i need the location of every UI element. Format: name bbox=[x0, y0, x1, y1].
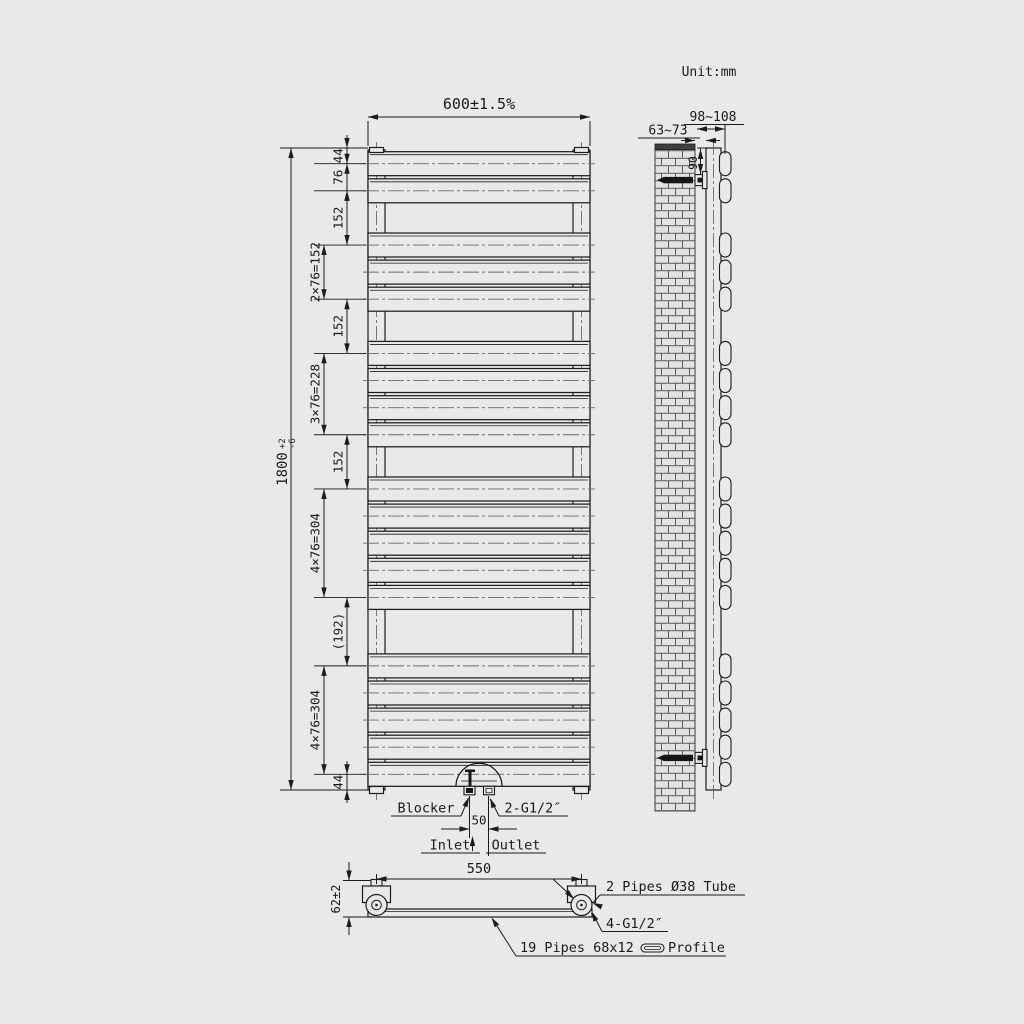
tube-bottom-foot bbox=[370, 787, 384, 794]
depth-dimension: 98~108 bbox=[690, 110, 737, 125]
panel-profile-bar bbox=[368, 909, 592, 917]
panel-cross-section bbox=[720, 531, 732, 555]
segment-dim-label: 152 bbox=[331, 315, 346, 338]
bracket-bolt-head bbox=[698, 178, 703, 183]
panel-cross-section bbox=[720, 152, 732, 176]
blocker-label: Blocker bbox=[398, 801, 455, 817]
unit-label: Unit:mm bbox=[682, 65, 737, 80]
wall-top-cap bbox=[655, 144, 695, 150]
panel-cross-section bbox=[720, 477, 732, 501]
tube-center-dot bbox=[580, 904, 583, 907]
width-dimension-label: 600±1.5% bbox=[443, 95, 515, 113]
blocker-stem bbox=[469, 771, 472, 787]
tubes-label: 2 Pipes Ø38 Tube bbox=[606, 879, 736, 895]
segment-dim-label: 4×76=304 bbox=[308, 513, 323, 573]
svg-text:62±2: 62±2 bbox=[329, 885, 343, 914]
segment-dim-label: 44 bbox=[331, 775, 346, 790]
segment-dim-label: 76 bbox=[331, 170, 346, 185]
bracket-plate bbox=[703, 172, 708, 189]
side-view bbox=[655, 141, 731, 811]
segment-dim-label: 2×76=152 bbox=[308, 242, 323, 302]
tube-bottom-foot bbox=[575, 787, 589, 794]
panel-cross-section bbox=[720, 585, 732, 609]
anchor-bolt bbox=[664, 177, 693, 183]
panel-cross-section bbox=[720, 762, 732, 786]
anchor-bolt bbox=[664, 755, 693, 761]
spacing-dimension: 50 bbox=[471, 813, 486, 828]
bracket-plate bbox=[703, 749, 708, 766]
panel-cross-section bbox=[720, 708, 732, 732]
tube-top-cap bbox=[370, 148, 384, 153]
svg-text:90: 90 bbox=[686, 156, 700, 170]
outlet-fitting bbox=[484, 786, 495, 795]
blocker-plug bbox=[466, 788, 473, 793]
panel-cross-section bbox=[720, 233, 732, 257]
bottom-height-dimension: 62±2 bbox=[329, 885, 343, 914]
bracket-bolt-head bbox=[698, 756, 703, 761]
panel-cross-section bbox=[720, 369, 732, 393]
segment-dim-label: 44 bbox=[331, 148, 346, 163]
blocker-crossbar bbox=[465, 770, 475, 773]
tube-top-cap bbox=[575, 148, 589, 153]
technical-drawing: 44761522×76=1521523×76=2281524×76=304(19… bbox=[0, 0, 1024, 1024]
segment-dim-label: (192) bbox=[331, 613, 346, 651]
segment-dim-label: 152 bbox=[331, 207, 346, 230]
height-dim-tol-plus: +2 bbox=[278, 438, 288, 449]
panel-cross-section bbox=[720, 260, 732, 284]
panel-cross-section bbox=[720, 504, 732, 528]
outlet-label: Outlet bbox=[492, 838, 541, 854]
inlet-label: Inlet bbox=[430, 838, 471, 854]
panel-cross-section bbox=[720, 287, 732, 311]
profile-label-prefix: 19 Pipes 68x12 bbox=[520, 940, 634, 956]
tube-center-dot bbox=[375, 904, 378, 907]
bracket-offset-dimension: 90 bbox=[686, 156, 700, 170]
panel-cross-section bbox=[720, 654, 732, 678]
wall-gap-dimension: 63~73 bbox=[648, 124, 687, 139]
panel-cross-section bbox=[720, 735, 732, 759]
panel-cross-section bbox=[720, 558, 732, 582]
tube-spacing-dimension: 550 bbox=[467, 861, 491, 877]
segment-dim-label: 4×76=304 bbox=[308, 690, 323, 750]
height-dim-tol-minus: -6 bbox=[288, 438, 298, 449]
connection-label: 2-G1/2″ bbox=[505, 801, 562, 817]
height-dim-value: 1800 bbox=[275, 452, 291, 486]
segment-dim-label: 3×76=228 bbox=[308, 364, 323, 424]
segment-dim-label: 152 bbox=[331, 451, 346, 474]
threads-label: 4-G1/2″ bbox=[606, 916, 663, 932]
panel-cross-section bbox=[720, 179, 732, 203]
panel-cross-section bbox=[720, 681, 732, 705]
panel-cross-section bbox=[720, 396, 732, 420]
panel-cross-section bbox=[720, 423, 732, 447]
panel-cross-section bbox=[720, 341, 732, 365]
profile-label-suffix: Profile bbox=[668, 940, 725, 956]
brick-wall bbox=[655, 150, 695, 812]
